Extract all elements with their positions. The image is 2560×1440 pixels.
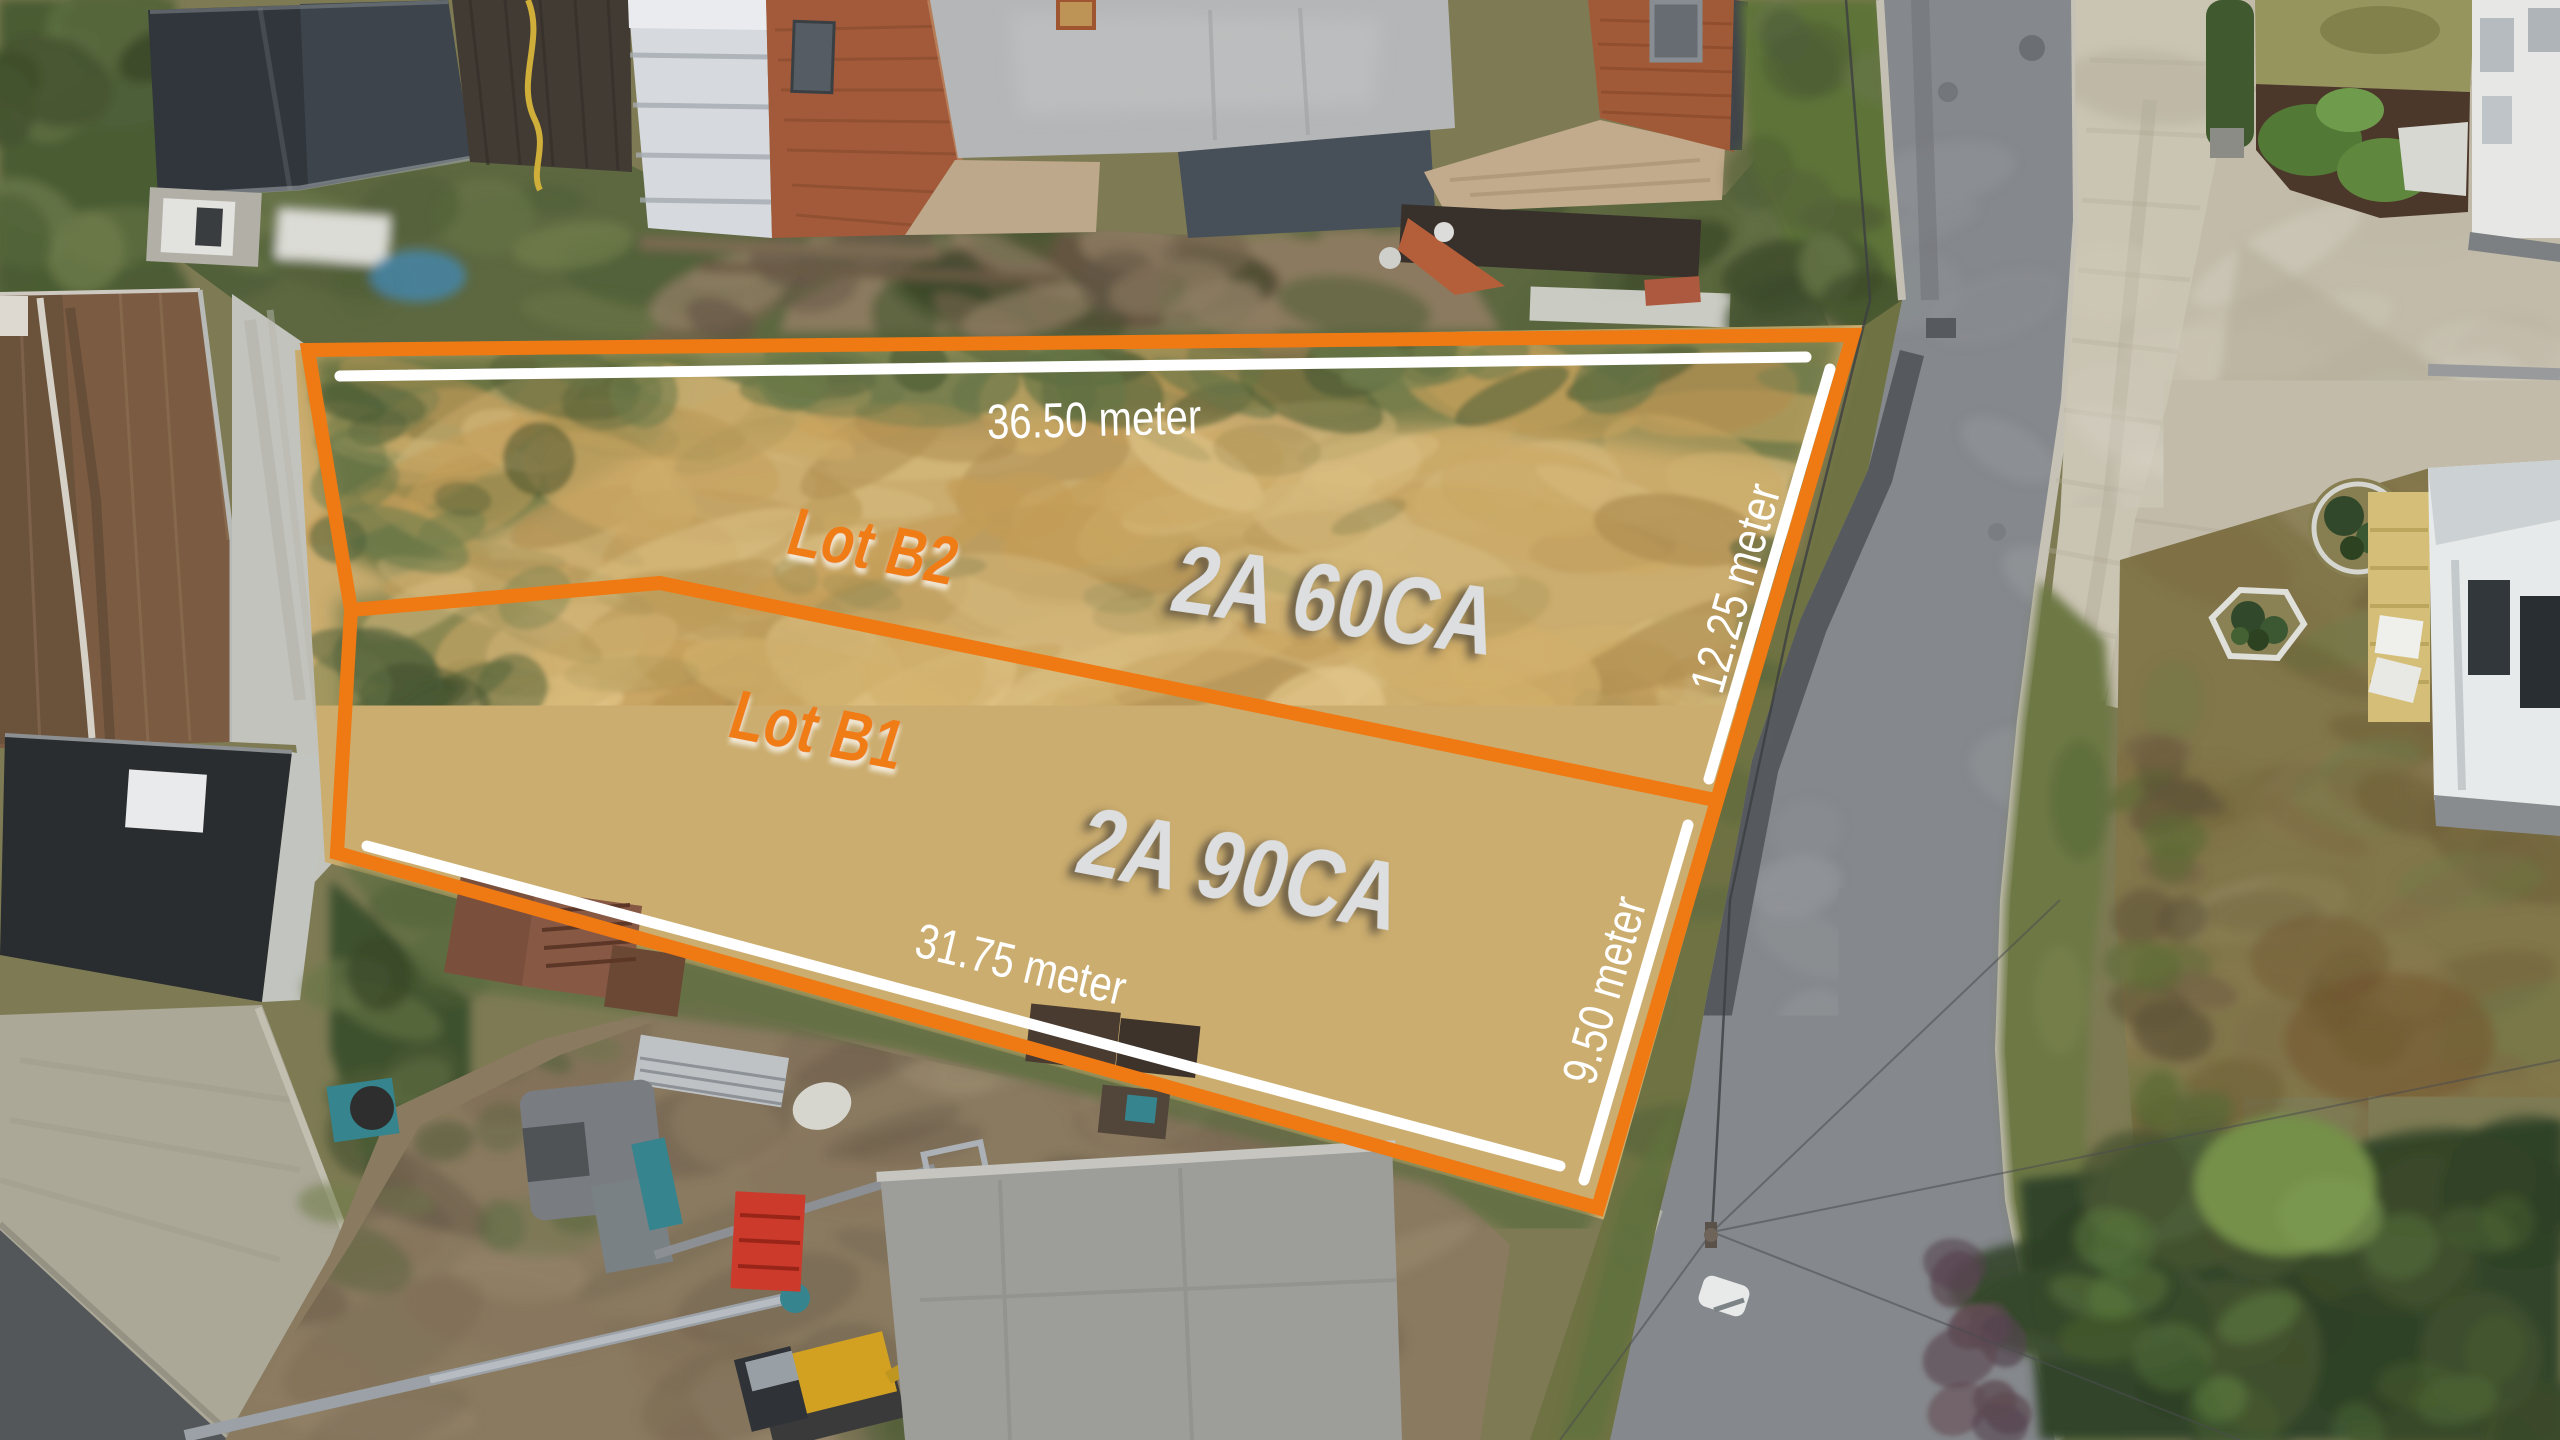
svg-text:36.50 meter: 36.50 meter [986, 389, 1202, 449]
